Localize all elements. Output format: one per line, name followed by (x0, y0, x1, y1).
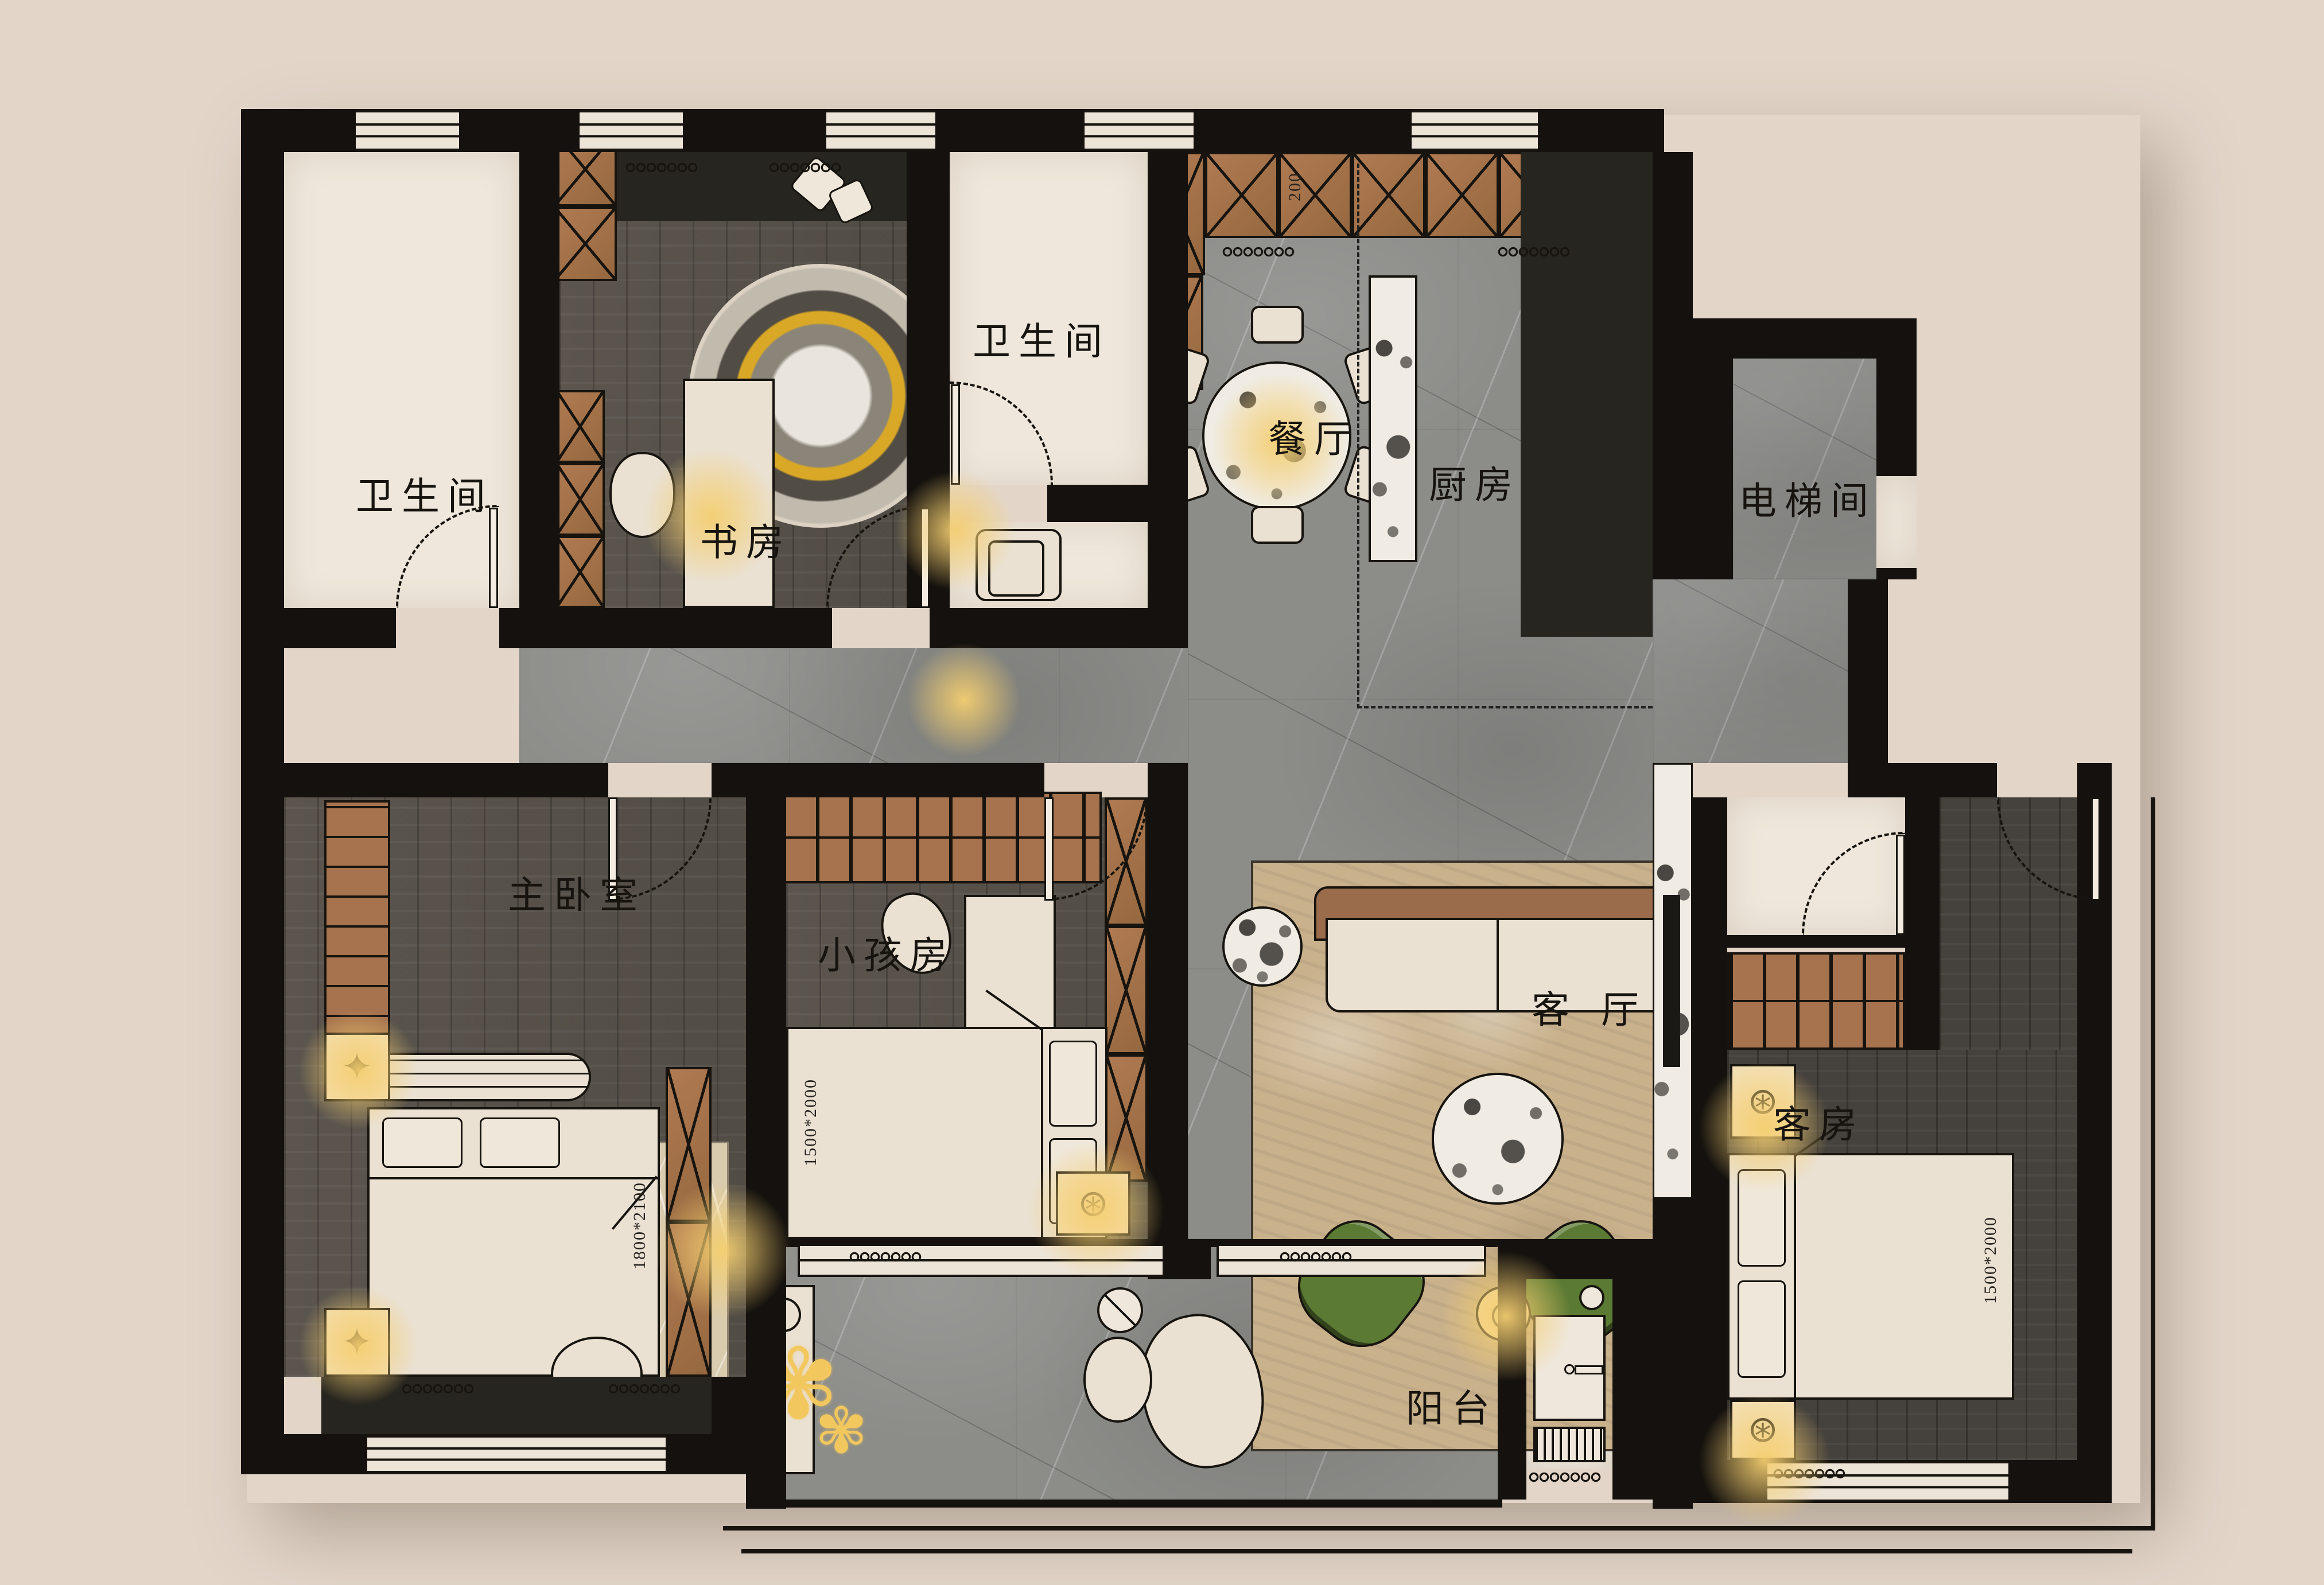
dining-sideboard (1205, 152, 1278, 238)
room-label-guest: 客房 (1773, 1094, 1865, 1149)
star-lamp-icon: ✦ (341, 1324, 372, 1361)
coffee-table (1432, 1073, 1564, 1205)
curtain-symbol (1498, 247, 1570, 257)
room-label-kitchen: 厨房 (1429, 454, 1521, 509)
curtain-symbol (769, 162, 841, 173)
room-label-bathroom-2: 卫生间 (973, 311, 1110, 366)
guest-wardrobe (1727, 952, 1905, 1050)
wall (786, 763, 1044, 797)
curtain-symbol (849, 1252, 922, 1262)
window (1767, 1460, 2008, 1503)
cloakroom-door-leaf (1896, 835, 1905, 935)
master-bed (367, 1107, 660, 1377)
lounge-ottoman (1083, 1337, 1152, 1423)
room-label-bathroom-1: 卫生间 (356, 466, 493, 521)
curtain-symbol (1222, 247, 1295, 257)
dining-chair (1251, 506, 1304, 544)
guest-bed (1727, 1153, 2014, 1400)
wall (1176, 1239, 1211, 1279)
washing-machine (1533, 1315, 1606, 1421)
study-bookshelf (555, 463, 605, 536)
master-shelf-unit (324, 800, 390, 1047)
kitchen-zone-boundary (1357, 163, 1653, 708)
wall (1653, 1199, 1693, 1509)
wall (284, 1434, 367, 1474)
master-wardrobe (666, 1222, 712, 1377)
wall (1693, 797, 1727, 1503)
bathroom-2-door-leaf (951, 384, 960, 485)
curtain-symbol (402, 1384, 474, 1394)
study-desk (683, 379, 775, 608)
window (356, 109, 459, 152)
wall (1727, 935, 1905, 948)
study-corner-cabinet (554, 207, 617, 281)
wall (1148, 763, 1188, 1279)
curtain-symbol (1280, 1252, 1352, 1262)
wall (1612, 1279, 1653, 1500)
wall (712, 1377, 746, 1474)
curtain-symbol (1773, 1469, 1845, 1479)
curtain-symbol (1529, 1472, 1601, 1482)
site-outline (723, 1526, 2155, 1531)
wall (241, 763, 608, 797)
master-bed-size: 1800*2100 (630, 1182, 650, 1269)
floor-plan-canvas: 200 1800*2100 ✦ ✦ 15 (0, 0, 2324, 1585)
kids-bed-size: 1500*2000 (801, 1078, 821, 1166)
wall (1693, 359, 1733, 579)
wall (1047, 485, 1188, 522)
room-label-study: 书房 (700, 512, 792, 567)
room-label-master: 主卧室 (508, 864, 646, 920)
kids-cabinet (1105, 926, 1148, 1054)
wall (1653, 152, 1693, 579)
hallway-floor (519, 648, 1188, 763)
bathroom-1-door-leaf (489, 508, 498, 608)
wall (746, 763, 786, 1509)
wall (2008, 1460, 2112, 1503)
sofa-side-table (1222, 906, 1303, 987)
site-outline (2151, 797, 2155, 1531)
curtain-symbol (608, 1384, 681, 1394)
star-lamp-icon: ✦ (341, 1049, 372, 1085)
kids-door-leaf (1044, 797, 1054, 901)
window (826, 109, 935, 152)
plant-icon: ✾ (815, 1400, 868, 1463)
entry-corridor-floor (1653, 579, 1848, 763)
window (580, 109, 683, 152)
wall (1693, 318, 1917, 359)
wall (499, 608, 832, 648)
wall (1848, 763, 1997, 797)
elevator-floor (1733, 359, 1876, 579)
wall (1693, 1460, 1767, 1503)
laundry-vent (1533, 1427, 1606, 1462)
wall (241, 608, 396, 648)
side-table-small (1097, 1287, 1143, 1333)
room-label-balcony: 阳台 (1406, 1378, 1498, 1433)
master-wardrobe (666, 1067, 712, 1222)
wall (746, 1500, 1502, 1508)
study-door-leaf (920, 508, 930, 608)
spoke-lamp-icon: ⊛ (1078, 1185, 1109, 1222)
wall (1148, 152, 1188, 648)
elevator-door-gap (1876, 476, 1917, 568)
vanity-sink (976, 529, 1062, 601)
guest-bed-size: 1500*2000 (1981, 1216, 2000, 1304)
window (367, 1434, 666, 1474)
room-label-dining: 餐厅 (1268, 408, 1360, 464)
study-bookshelf (555, 536, 605, 608)
spoke-lamp-icon: ⊛ (1747, 1411, 1778, 1448)
window (1085, 109, 1194, 152)
site-outline (741, 1549, 2132, 1553)
cabinet-depth-dimension: 200 (1285, 172, 1305, 201)
window (1412, 109, 1538, 152)
kids-cabinet (1105, 1054, 1148, 1182)
study-chair (609, 452, 675, 538)
wall (930, 608, 1188, 648)
room-label-living: 客厅 (1532, 979, 1670, 1034)
wall (519, 152, 559, 608)
study-bookshelf (555, 390, 605, 463)
wall (1905, 797, 1940, 1050)
curtain-symbol (625, 162, 698, 173)
room-label-elevator: 电梯间 (1739, 470, 1876, 525)
room-label-kids: 小孩房 (818, 925, 955, 980)
dining-chair (1251, 306, 1304, 344)
wall (1498, 1279, 1526, 1500)
entry-door-leaf (2091, 797, 2100, 901)
wall (1876, 359, 1917, 476)
laundry-sink (1579, 1285, 1604, 1310)
wall (1876, 568, 1917, 579)
